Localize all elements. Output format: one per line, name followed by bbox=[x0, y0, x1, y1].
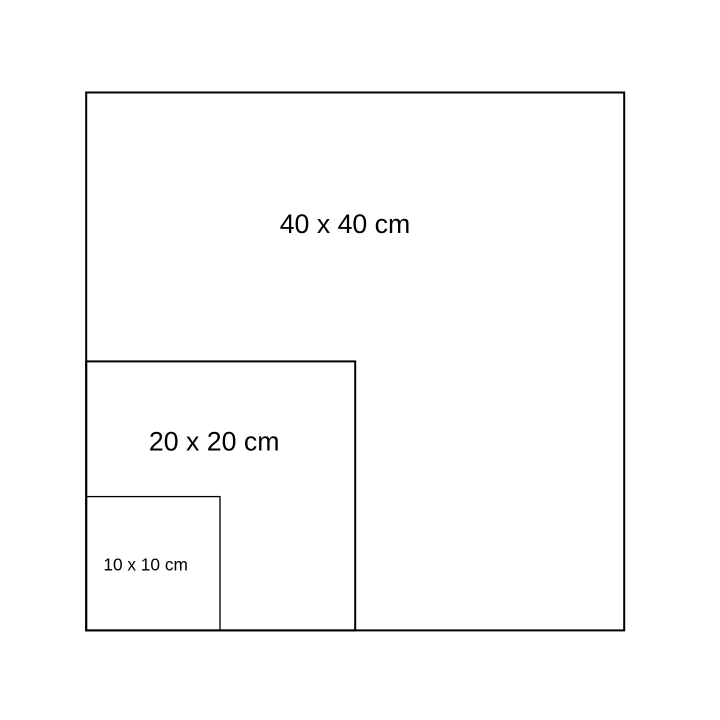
svg-text:40 x 40 cm: 40 x 40 cm bbox=[280, 209, 411, 239]
svg-text:20 x 20 cm: 20 x 20 cm bbox=[149, 426, 280, 456]
svg-text:10 x 10 cm: 10 x 10 cm bbox=[103, 554, 188, 574]
